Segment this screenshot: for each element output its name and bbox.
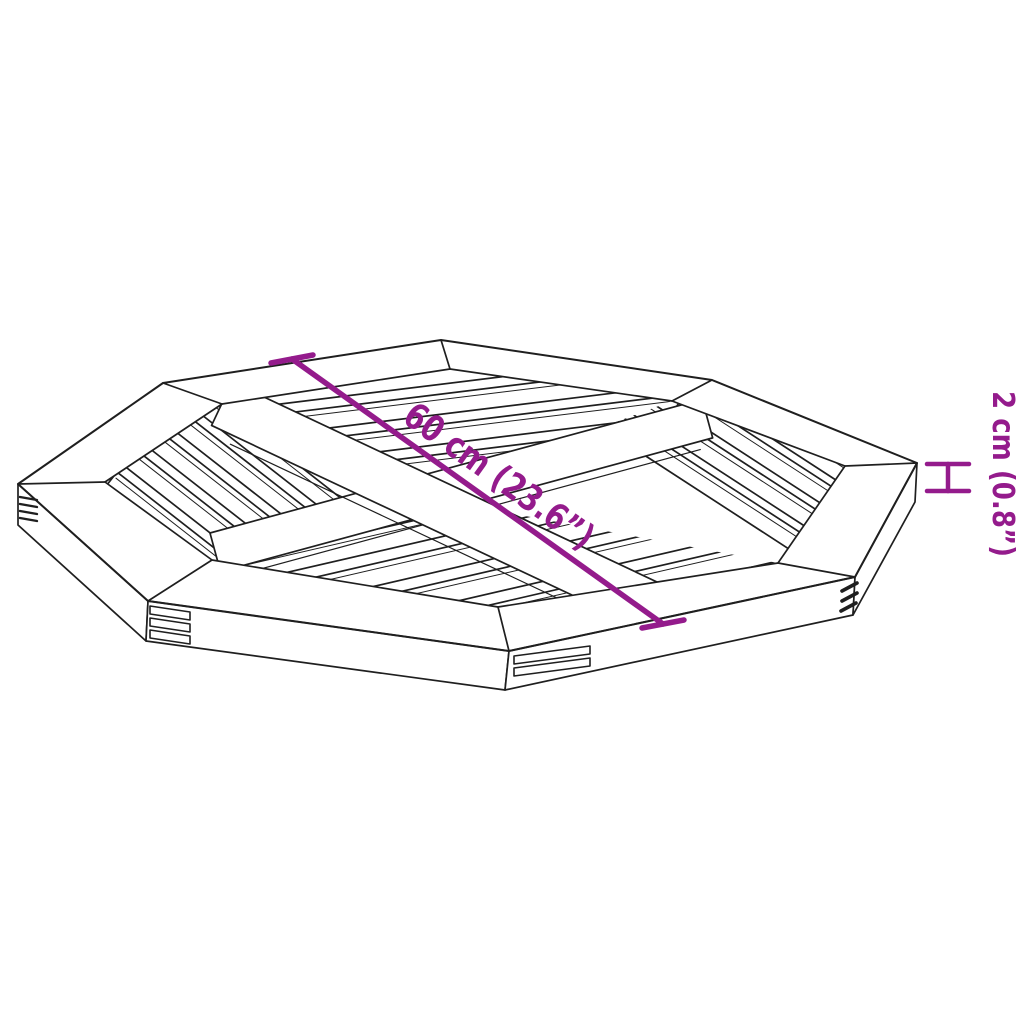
product-dimension-image: 60 cm (23.6”) 2 cm (0.8”)	[0, 0, 1024, 1024]
thickness-gauge-icon	[927, 464, 969, 491]
tabletop-line-art	[18, 335, 1024, 702]
thickness-dimension-label: 2 cm (0.8”)	[985, 391, 1020, 557]
product-diagram: 60 cm (23.6”) 2 cm (0.8”)	[0, 0, 1024, 1024]
